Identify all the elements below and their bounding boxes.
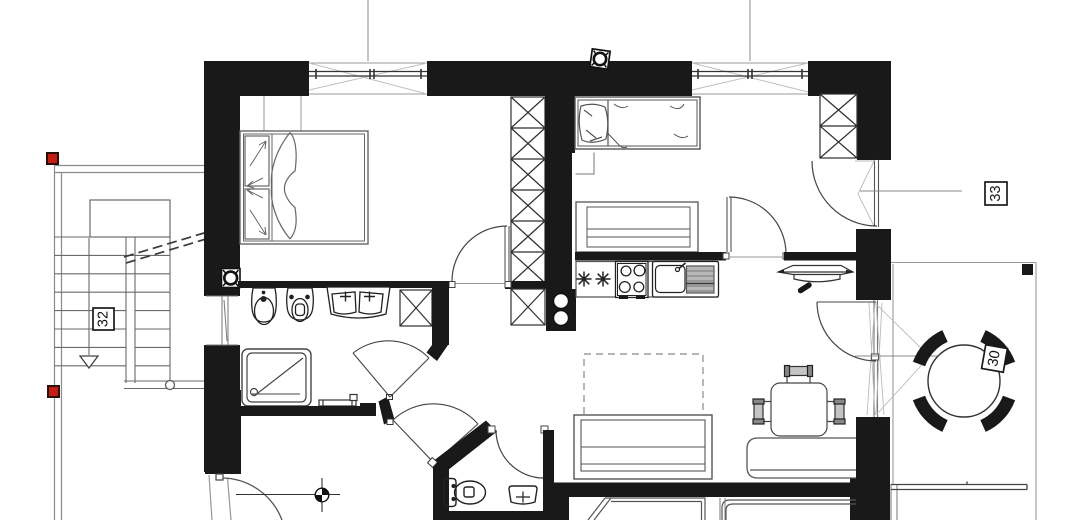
- svg-text:33: 33: [988, 185, 1004, 201]
- svg-text:32: 32: [96, 311, 112, 327]
- svg-text:30: 30: [985, 349, 1004, 368]
